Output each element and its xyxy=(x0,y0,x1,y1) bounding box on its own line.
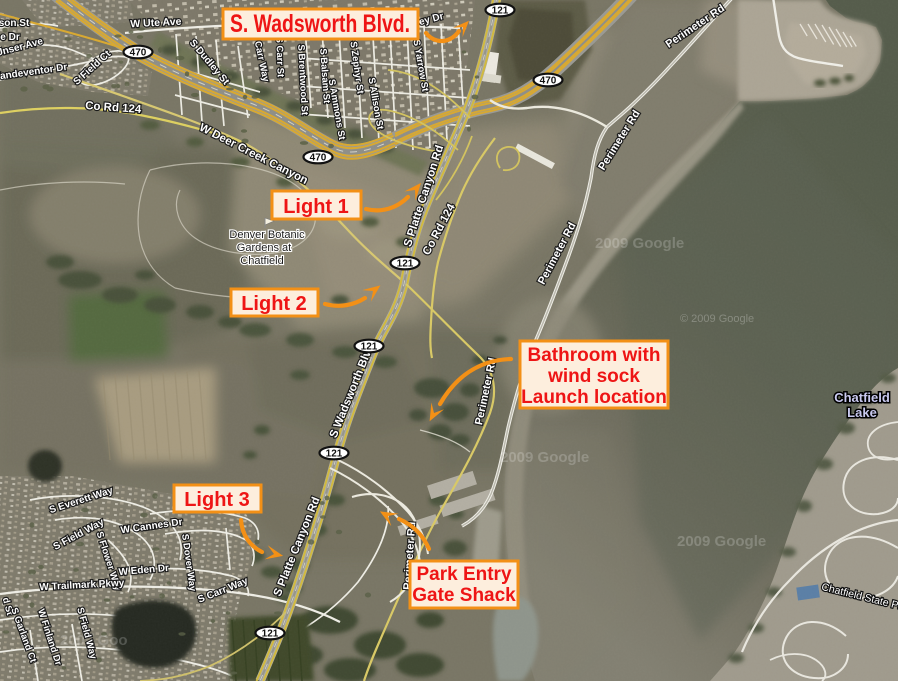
svg-text:470: 470 xyxy=(540,76,557,87)
svg-text:Gardens at: Gardens at xyxy=(237,242,291,254)
svg-text:121: 121 xyxy=(397,259,414,270)
svg-text:121: 121 xyxy=(262,629,279,640)
svg-text:S Carr St: S Carr St xyxy=(273,36,285,78)
svg-text:S. Wadsworth Blvd.: S. Wadsworth Blvd. xyxy=(230,10,410,38)
svg-text:© 2009 Google: © 2009 Google xyxy=(680,313,754,325)
svg-text:Light 1: Light 1 xyxy=(283,196,349,218)
svg-text:2009 Google: 2009 Google xyxy=(500,449,589,466)
svg-text:470: 470 xyxy=(310,153,327,164)
svg-text:Bathroom with: Bathroom with xyxy=(528,345,661,366)
svg-text:2009 Google: 2009 Google xyxy=(595,235,684,252)
svg-text:Chatfield: Chatfield xyxy=(834,390,890,405)
svg-text:470: 470 xyxy=(130,48,147,59)
svg-text:Launch location: Launch location xyxy=(521,387,667,408)
svg-text:Light 2: Light 2 xyxy=(241,293,307,315)
svg-text:2009 Google: 2009 Google xyxy=(677,533,766,550)
svg-text:121: 121 xyxy=(361,342,378,353)
svg-text:Gate Shack: Gate Shack xyxy=(412,585,516,606)
svg-text:Denver Botanic: Denver Botanic xyxy=(229,229,305,241)
svg-text:Light 3: Light 3 xyxy=(184,489,250,511)
svg-text:121: 121 xyxy=(326,449,343,460)
svg-text:Chatfield: Chatfield xyxy=(240,255,283,267)
svg-text:Lake: Lake xyxy=(847,405,877,420)
svg-text:Park Entry: Park Entry xyxy=(416,564,511,585)
svg-text:son St: son St xyxy=(0,18,30,29)
svg-text:e Dr: e Dr xyxy=(0,32,20,43)
svg-text:wind sock: wind sock xyxy=(547,366,640,387)
svg-text:121: 121 xyxy=(492,6,509,17)
